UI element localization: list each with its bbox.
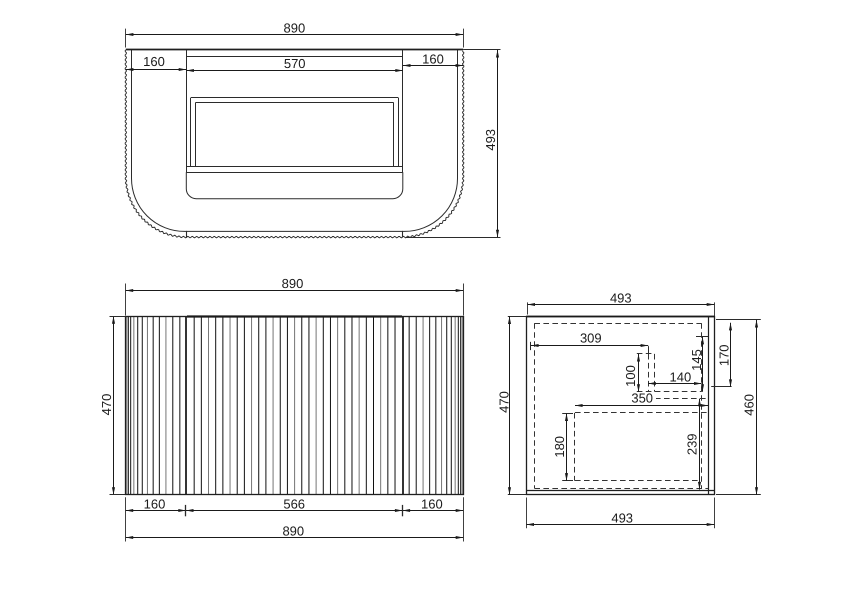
svg-text:890: 890 [284,21,306,36]
svg-text:566: 566 [283,496,305,511]
svg-text:180: 180 [552,436,567,458]
svg-text:160: 160 [144,496,166,511]
svg-text:460: 460 [742,394,757,416]
svg-text:145: 145 [689,349,704,371]
svg-text:100: 100 [623,365,638,387]
svg-text:470: 470 [99,394,114,416]
svg-text:493: 493 [611,511,633,526]
svg-text:570: 570 [284,56,306,71]
svg-text:160: 160 [421,496,443,511]
svg-text:493: 493 [610,290,632,305]
svg-text:890: 890 [282,523,304,538]
svg-text:493: 493 [483,129,498,151]
svg-text:890: 890 [282,276,304,291]
svg-text:350: 350 [631,390,653,405]
svg-text:160: 160 [143,54,165,69]
svg-text:309: 309 [580,331,602,346]
svg-text:160: 160 [422,51,444,66]
svg-text:170: 170 [716,344,731,366]
svg-text:470: 470 [496,391,511,413]
svg-text:239: 239 [685,433,700,455]
